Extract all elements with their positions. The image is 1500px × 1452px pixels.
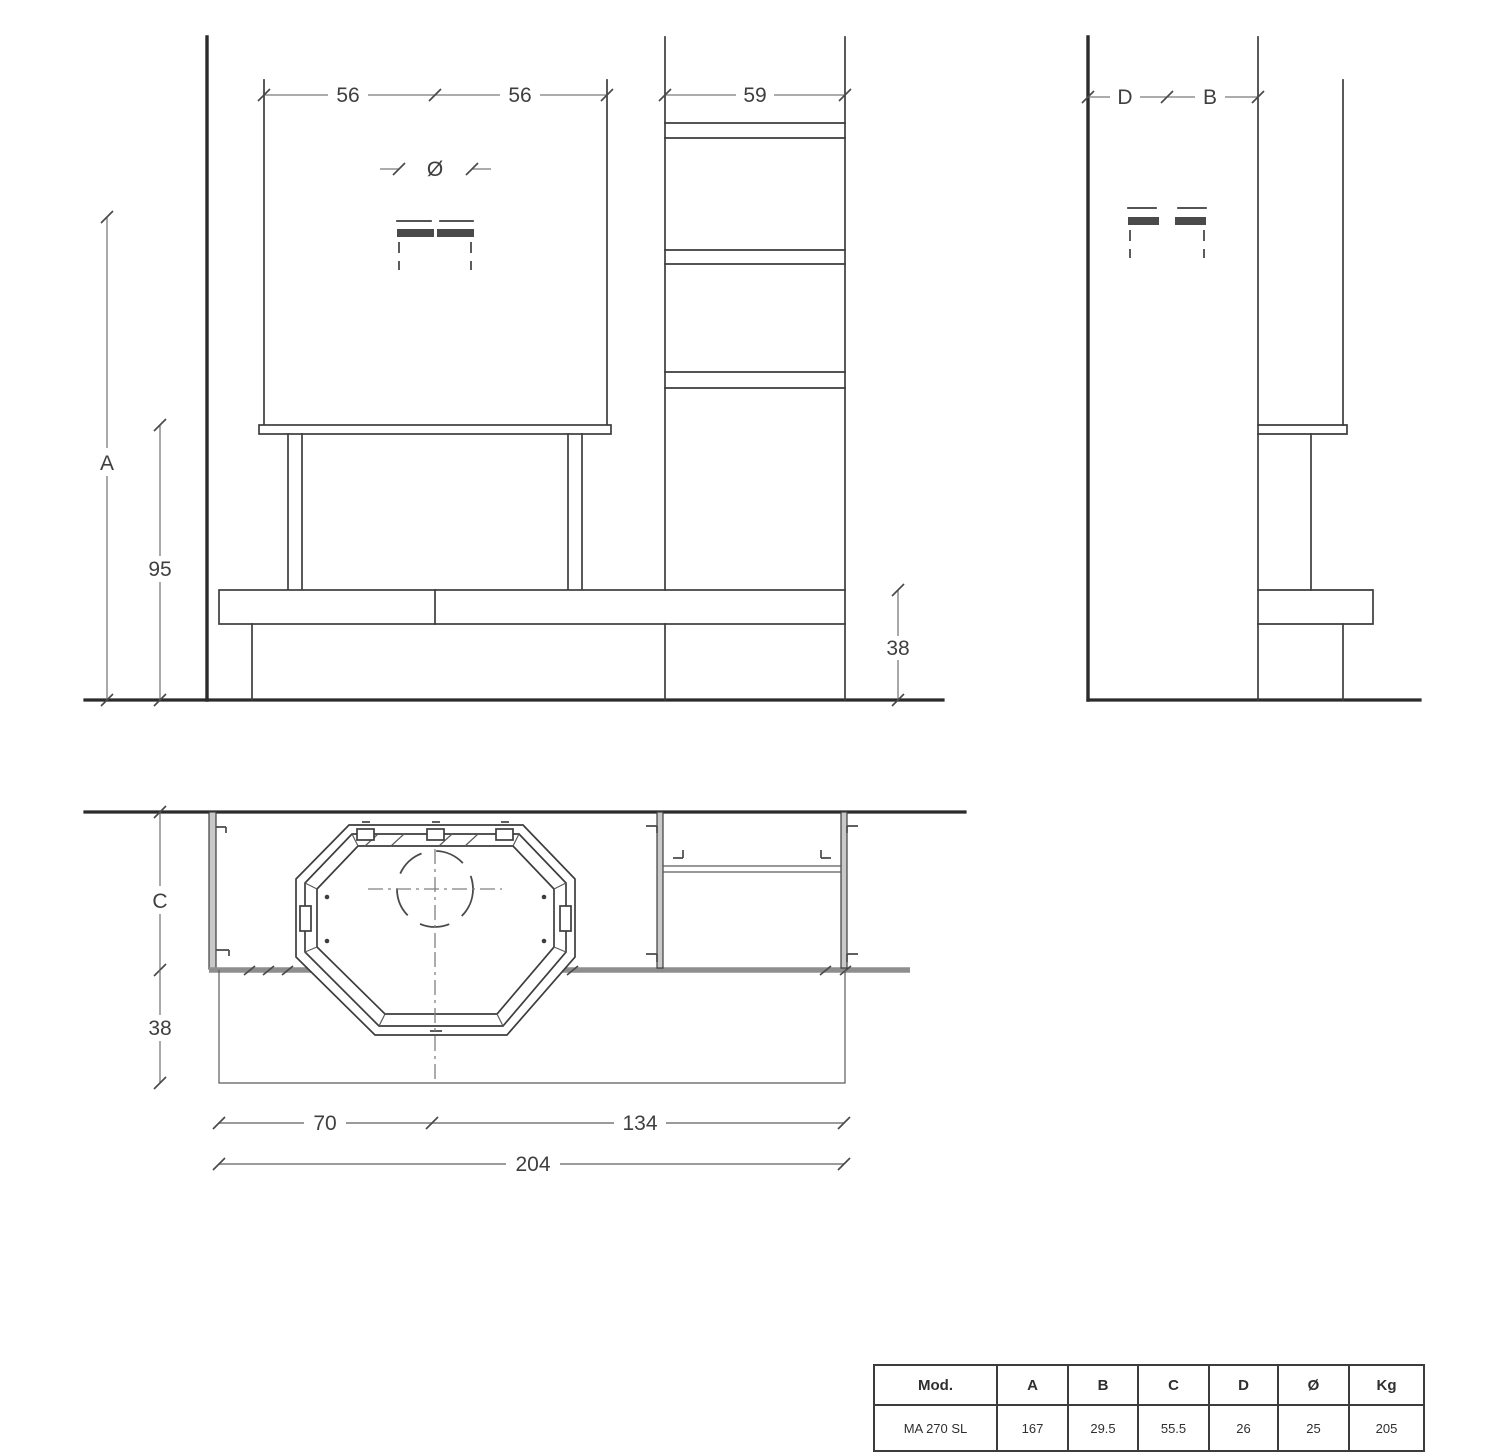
fixing-dot [542, 895, 547, 900]
hood-legs [288, 434, 582, 590]
side-bench [1258, 590, 1373, 624]
spec-value-a: 167 [997, 1405, 1068, 1451]
fixing-dot [325, 939, 330, 944]
dim-label-38-front: 38 [886, 637, 909, 660]
dim-label-a: A [100, 452, 114, 475]
spec-table-container: Mod. A B C D Ø Kg MA 270 SL 167 29.5 55.… [873, 1364, 1425, 1452]
spec-value-b: 29.5 [1068, 1405, 1138, 1451]
bench-slab [219, 590, 845, 624]
plan-shelf-column [646, 812, 858, 968]
dim-shelf-width: 59 [659, 83, 851, 107]
octagon-clip-left [357, 829, 374, 840]
dim-plan-depth-c: C [145, 806, 175, 976]
dim-label-134: 134 [622, 1112, 657, 1135]
dim-hood-width: 56 56 [258, 83, 613, 107]
dim-label-flue: Ø [427, 158, 443, 181]
technical-drawing-page: { "drawing_title": "Fireplace cladding d… [0, 0, 1500, 1427]
spec-value-kg: 205 [1349, 1405, 1424, 1451]
dim-label-38-plan: 38 [148, 1017, 171, 1040]
dim-label-70: 70 [313, 1112, 336, 1135]
spec-header-mod: Mod. [874, 1365, 997, 1405]
plan-column-right-wall [841, 812, 847, 968]
dim-plan-bench-depth: 38 [141, 970, 179, 1089]
dim-label-56-right: 56 [508, 84, 531, 107]
dim-hood-height: 95 [141, 419, 179, 706]
dim-label-204: 204 [515, 1153, 550, 1176]
dim-bench-height: 38 [879, 584, 917, 706]
front-view: 56 56 59 Ø A 95 [85, 37, 943, 706]
side-view: D B [1082, 37, 1420, 700]
plan-firebox-octagon [296, 822, 575, 1083]
fixing-dot [325, 895, 330, 900]
spec-value-diameter: 25 [1278, 1405, 1349, 1451]
dim-label-95: 95 [148, 558, 171, 581]
spec-table-header-row: Mod. A B C D Ø Kg [874, 1365, 1424, 1405]
flue-connector-icon [397, 221, 474, 270]
spec-value-c: 55.5 [1138, 1405, 1209, 1451]
dim-label-c: C [152, 890, 167, 913]
hood-sides [264, 80, 607, 425]
spec-table: Mod. A B C D Ø Kg MA 270 SL 167 29.5 55.… [873, 1364, 1425, 1452]
spec-header-kg: Kg [1349, 1365, 1424, 1405]
hood-bottom-lip [259, 425, 611, 434]
plan-column-clips [646, 826, 858, 962]
spec-header-d: D [1209, 1365, 1278, 1405]
octagon-side-clip-right [560, 906, 571, 931]
plan-column-left-wall [657, 812, 663, 968]
octagon-clip-right [496, 829, 513, 840]
dim-depth: D B [1082, 85, 1264, 109]
side-hood-lip [1258, 425, 1347, 434]
shelf-lines [665, 123, 845, 388]
dim-plan-total-span: 204 [213, 1152, 850, 1176]
dim-label-56-left: 56 [336, 84, 359, 107]
spec-header-a: A [997, 1365, 1068, 1405]
spec-header-b: B [1068, 1365, 1138, 1405]
spec-header-diameter: Ø [1278, 1365, 1349, 1405]
octagon-side-clip-left [300, 906, 311, 931]
spec-value-d: 26 [1209, 1405, 1278, 1451]
fixing-dot [542, 939, 547, 944]
dim-flue-diameter: Ø [380, 158, 491, 181]
dim-label-b: B [1203, 86, 1217, 109]
spec-header-c: C [1138, 1365, 1209, 1405]
spec-value-mod: MA 270 SL [874, 1405, 997, 1451]
octagon-clip-center [427, 829, 444, 840]
plan-view: C 38 70 134 204 [85, 806, 965, 1176]
spec-table-data-row: MA 270 SL 167 29.5 55.5 26 25 205 [874, 1405, 1424, 1451]
plan-column-shelf-edge [663, 866, 841, 872]
side-flue-connector-icon [1128, 208, 1206, 258]
drawing-canvas: 56 56 59 Ø A 95 [0, 0, 1500, 1427]
plan-left-sidewall [209, 812, 216, 969]
dim-label-59: 59 [743, 84, 766, 107]
dim-label-d: D [1117, 86, 1132, 109]
dim-plan-spans: 70 134 [213, 1111, 850, 1135]
plan-left-clips [216, 827, 229, 956]
dim-total-height: A [92, 211, 122, 706]
